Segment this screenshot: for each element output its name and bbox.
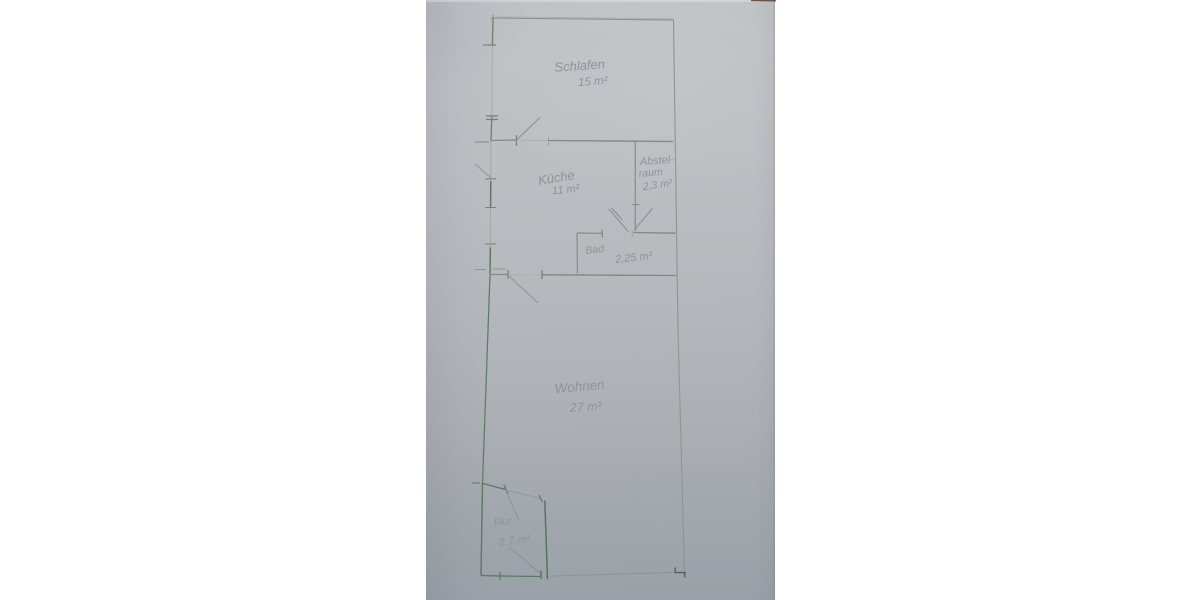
svg-text:Flur: Flur	[493, 515, 513, 529]
svg-text:2,25 m²: 2,25 m²	[614, 250, 654, 266]
svg-text:11 m²: 11 m²	[551, 183, 580, 198]
svg-text:15 m²: 15 m²	[578, 75, 609, 89]
svg-text:2,3 m²: 2,3 m²	[641, 177, 674, 193]
svg-text:Bad: Bad	[585, 243, 606, 257]
svg-text:2,7 m²: 2,7 m²	[497, 533, 531, 549]
svg-text:27 m²: 27 m²	[568, 399, 602, 415]
svg-text:Wohnen: Wohnen	[554, 377, 605, 396]
svg-text:Schlafen: Schlafen	[554, 56, 606, 74]
